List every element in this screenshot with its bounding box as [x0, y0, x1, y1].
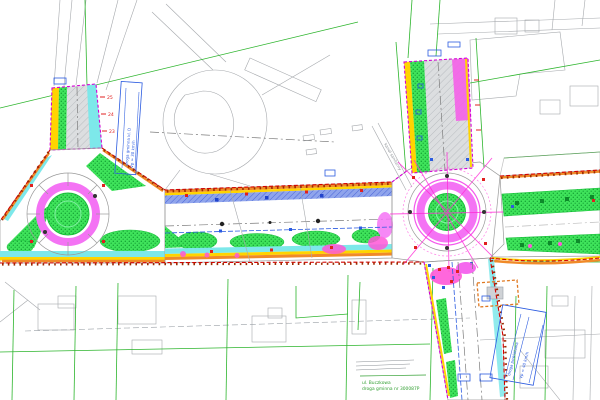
left-roundabout-plaza — [0, 148, 165, 263]
site-plan-drawing: 25 24 23 droga gminna kl. D Vp = 30 km/h… — [0, 0, 600, 400]
left-central-island — [47, 193, 89, 235]
north-road-leg — [404, 42, 481, 173]
left-roundabout — [27, 173, 109, 255]
utility-label: kanał sanitarny — [383, 142, 403, 172]
station-label-25: 25 — [107, 95, 113, 101]
northwest-road-stub — [50, 78, 107, 150]
main-road-corridor — [165, 182, 393, 263]
station-tick-marks — [100, 97, 107, 131]
street-label: ul. Buczkowa droga gminna nr 300087P — [356, 360, 426, 392]
street-ref: droga gminna nr 300087P — [362, 386, 420, 392]
right-roundabout — [390, 152, 504, 272]
plan-canvas[interactable]: 25 24 23 droga gminna kl. D Vp = 30 km/h… — [0, 0, 600, 400]
street-name: ul. Buczkowa — [362, 380, 391, 386]
station-tick-marks — [474, 80, 481, 130]
svg-text:Vp = 30 km/h: Vp = 30 km/h — [129, 140, 136, 168]
utility-lines-magenta — [390, 152, 504, 272]
station-label-24: 24 — [108, 112, 114, 118]
svg-text:Vp = 40 km/h: Vp = 40 km/h — [518, 351, 530, 379]
east-road-leg — [492, 152, 600, 263]
svg-text:droga powiatowa: droga powiatowa — [506, 341, 519, 376]
station-label-23: 23 — [109, 129, 115, 135]
